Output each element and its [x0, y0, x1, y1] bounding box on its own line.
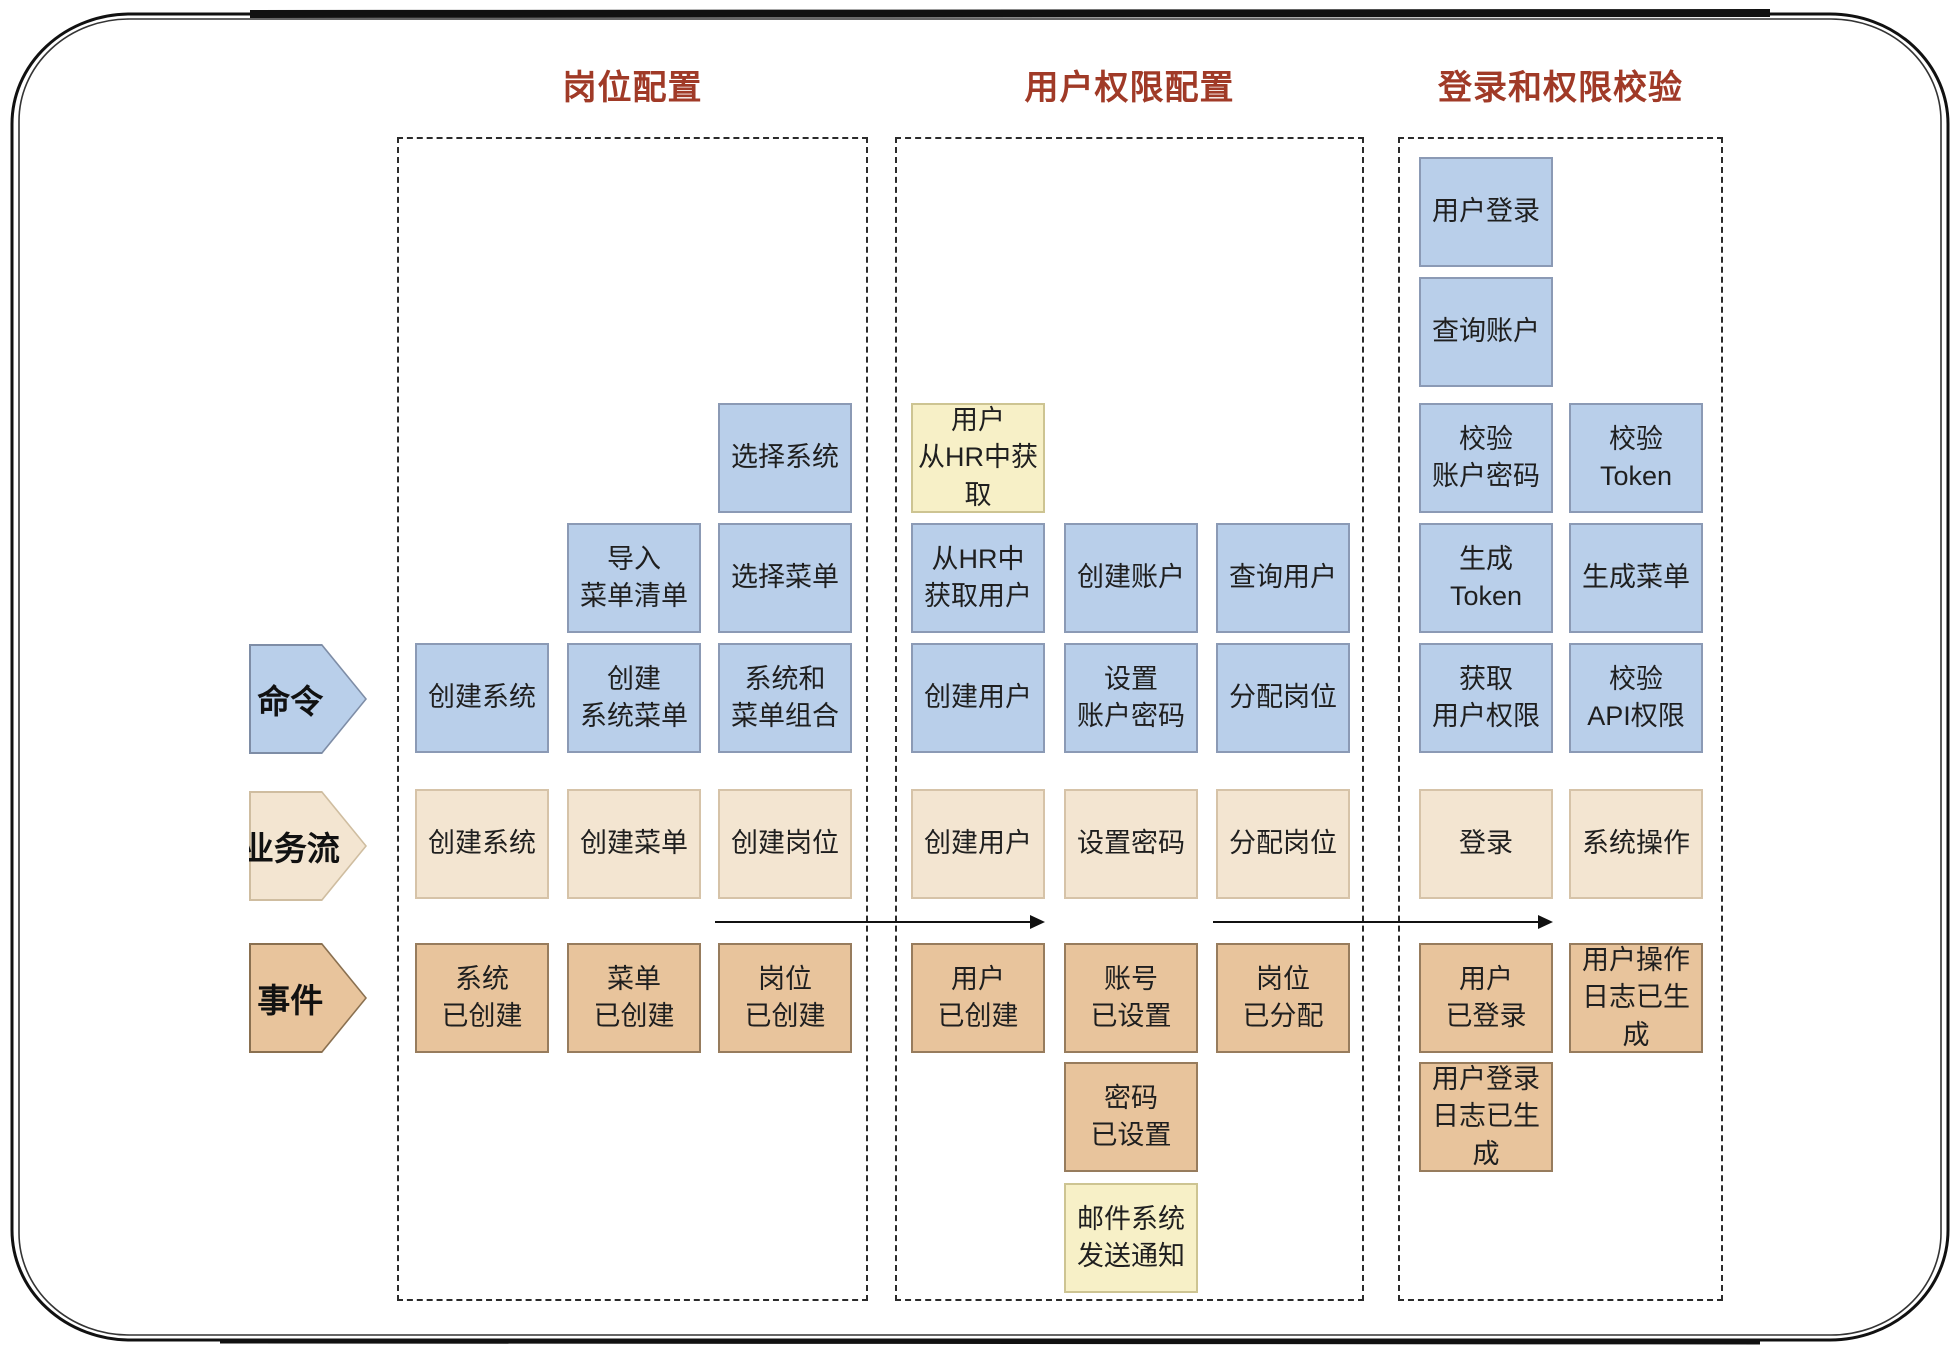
command-note: 创建 系统菜单	[567, 643, 701, 753]
event-note: 账号 已设置	[1064, 943, 1198, 1053]
command-note: 用户登录	[1419, 157, 1553, 267]
command-note: 选择系统	[718, 403, 852, 513]
command-note: 生成 Token	[1419, 523, 1553, 633]
event-note: 密码 已设置	[1064, 1062, 1198, 1172]
command-note: 导入 菜单清单	[567, 523, 701, 633]
flow-arrow	[1213, 921, 1540, 923]
command-note: 获取 用户权限	[1419, 643, 1553, 753]
event-note: 菜单 已创建	[567, 943, 701, 1053]
section-header-position-config: 岗位配置	[563, 60, 703, 109]
row-label-event: 事件	[249, 943, 367, 1053]
flow-note: 创建系统	[415, 789, 549, 899]
external-system-note: 用户 从HR中获取	[911, 403, 1045, 513]
flow-arrow-head	[1030, 915, 1045, 929]
command-note: 设置 账户密码	[1064, 643, 1198, 753]
row-label-text: 业务流	[249, 791, 332, 901]
flow-note: 设置密码	[1064, 789, 1198, 899]
flow-note: 系统操作	[1569, 789, 1703, 899]
command-note: 校验 账户密码	[1419, 403, 1553, 513]
event-storming-diagram: 岗位配置选择系统导入 菜单清单选择菜单创建系统创建 系统菜单系统和 菜单组合创建…	[0, 0, 1960, 1354]
flow-arrow-head	[1538, 915, 1553, 929]
event-note: 用户 已登录	[1419, 943, 1553, 1053]
row-label-command: 命令	[249, 644, 367, 754]
row-label-flow: 业务流	[249, 791, 367, 901]
command-note: 从HR中 获取用户	[911, 523, 1045, 633]
command-note: 创建系统	[415, 643, 549, 753]
command-note: 创建用户	[911, 643, 1045, 753]
row-label-text: 命令	[249, 644, 332, 754]
event-note: 用户登录 日志已生成	[1419, 1062, 1553, 1172]
command-note: 系统和 菜单组合	[718, 643, 852, 753]
command-note: 查询账户	[1419, 277, 1553, 387]
flow-note: 登录	[1419, 789, 1553, 899]
flow-arrow	[715, 921, 1032, 923]
command-note: 生成菜单	[1569, 523, 1703, 633]
flow-note: 创建菜单	[567, 789, 701, 899]
event-note: 用户操作 日志已生成	[1569, 943, 1703, 1053]
event-note: 岗位 已分配	[1216, 943, 1350, 1053]
flow-note: 创建用户	[911, 789, 1045, 899]
external-system-note: 邮件系统 发送通知	[1064, 1183, 1198, 1293]
flow-note: 分配岗位	[1216, 789, 1350, 899]
command-note: 创建账户	[1064, 523, 1198, 633]
section-header-user-permission-config: 用户权限配置	[1025, 60, 1235, 109]
event-note: 用户 已创建	[911, 943, 1045, 1053]
row-label-text: 事件	[249, 943, 332, 1053]
flow-note: 创建岗位	[718, 789, 852, 899]
command-note: 分配岗位	[1216, 643, 1350, 753]
command-note: 选择菜单	[718, 523, 852, 633]
section-header-login-and-permission-verification: 登录和权限校验	[1438, 60, 1683, 109]
command-note: 查询用户	[1216, 523, 1350, 633]
event-note: 岗位 已创建	[718, 943, 852, 1053]
command-note: 校验 Token	[1569, 403, 1703, 513]
command-note: 校验 API权限	[1569, 643, 1703, 753]
event-note: 系统 已创建	[415, 943, 549, 1053]
